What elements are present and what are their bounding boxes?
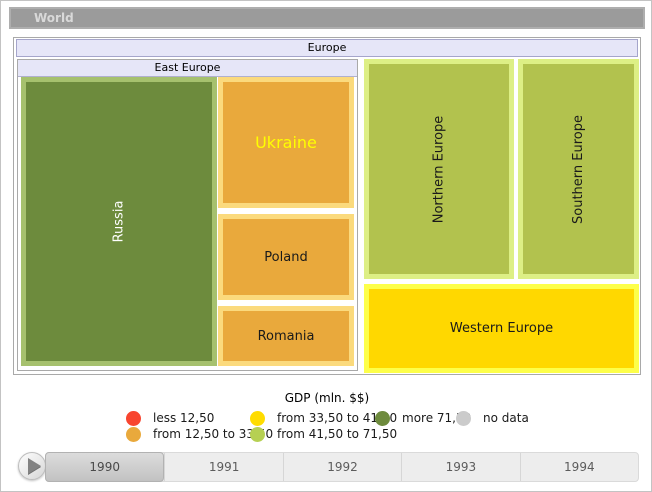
treemap-node-romania[interactable]: Romania: [218, 306, 354, 366]
treemap-node-romania-fill: Romania: [223, 311, 349, 361]
treemap-header-east-europe[interactable]: East Europe: [18, 60, 357, 77]
breadcrumb-label: World: [11, 9, 643, 27]
treemap-node-western-europe-fill: Western Europe: [369, 289, 634, 368]
treemap-node-russia-fill: Russia: [26, 82, 212, 361]
legend-swatch-gray: [456, 411, 471, 426]
play-button[interactable]: [18, 452, 46, 480]
year-segment-1991[interactable]: 1991: [164, 453, 282, 481]
legend-swatch-yellow: [250, 411, 265, 426]
year-segment-1994[interactable]: 1994: [520, 453, 638, 481]
treemap-node-label: Northern Europe: [432, 115, 447, 223]
treemap-node-russia[interactable]: Russia: [21, 77, 217, 366]
treemap-node-southern-europe-fill: Southern Europe: [523, 64, 634, 274]
legend-item-less-1250[interactable]: less 12,50: [126, 411, 214, 426]
treemap-node-label: Russia: [112, 201, 127, 243]
treemap-node-northern-europe-fill: Northern Europe: [369, 64, 509, 274]
treemap-node-southern-europe[interactable]: Southern Europe: [518, 59, 639, 279]
year-segment-1990[interactable]: 1990: [45, 452, 164, 482]
breadcrumb-world[interactable]: World: [9, 7, 645, 29]
treemap-node-ukraine-fill: Ukraine: [223, 82, 349, 203]
treemap-node-western-europe[interactable]: Western Europe: [364, 284, 639, 373]
year-segment-1993[interactable]: 1993: [401, 453, 519, 481]
treemap-node-label: Western Europe: [450, 321, 553, 336]
play-icon: [28, 458, 41, 474]
legend-item-4150-7150[interactable]: from 41,50 to 71,50: [250, 427, 397, 442]
legend-label: from 41,50 to 71,50: [277, 427, 397, 442]
year-segment-1992[interactable]: 1992: [283, 453, 401, 481]
year-timeline: 1990 1991 1992 1993 1994: [45, 452, 639, 482]
treemap-node-label: Southern Europe: [571, 115, 586, 224]
treemap-header-europe[interactable]: Europe: [16, 39, 638, 57]
treemap-widget: World Europe East Europe Russia Ukraine …: [0, 0, 652, 492]
legend-swatch-yellow-green: [250, 427, 265, 442]
legend-label: less 12,50: [153, 411, 214, 426]
treemap-node-label: Ukraine: [255, 133, 317, 152]
treemap-node-ukraine[interactable]: Ukraine: [218, 77, 354, 208]
legend-swatch-dark-green: [375, 411, 390, 426]
treemap-node-poland-fill: Poland: [223, 219, 349, 295]
treemap-node-label: Romania: [258, 329, 315, 344]
legend-swatch-orange: [126, 427, 141, 442]
legend-item-no-data[interactable]: no data: [456, 411, 529, 426]
treemap-node-poland[interactable]: Poland: [218, 214, 354, 300]
legend-title: GDP (mln. $$): [1, 391, 652, 405]
legend-label: no data: [483, 411, 529, 426]
treemap-container: Europe East Europe Russia Ukraine Poland…: [13, 37, 641, 375]
legend-swatch-red: [126, 411, 141, 426]
treemap-node-northern-europe[interactable]: Northern Europe: [364, 59, 514, 279]
treemap-node-label: Poland: [264, 250, 307, 265]
